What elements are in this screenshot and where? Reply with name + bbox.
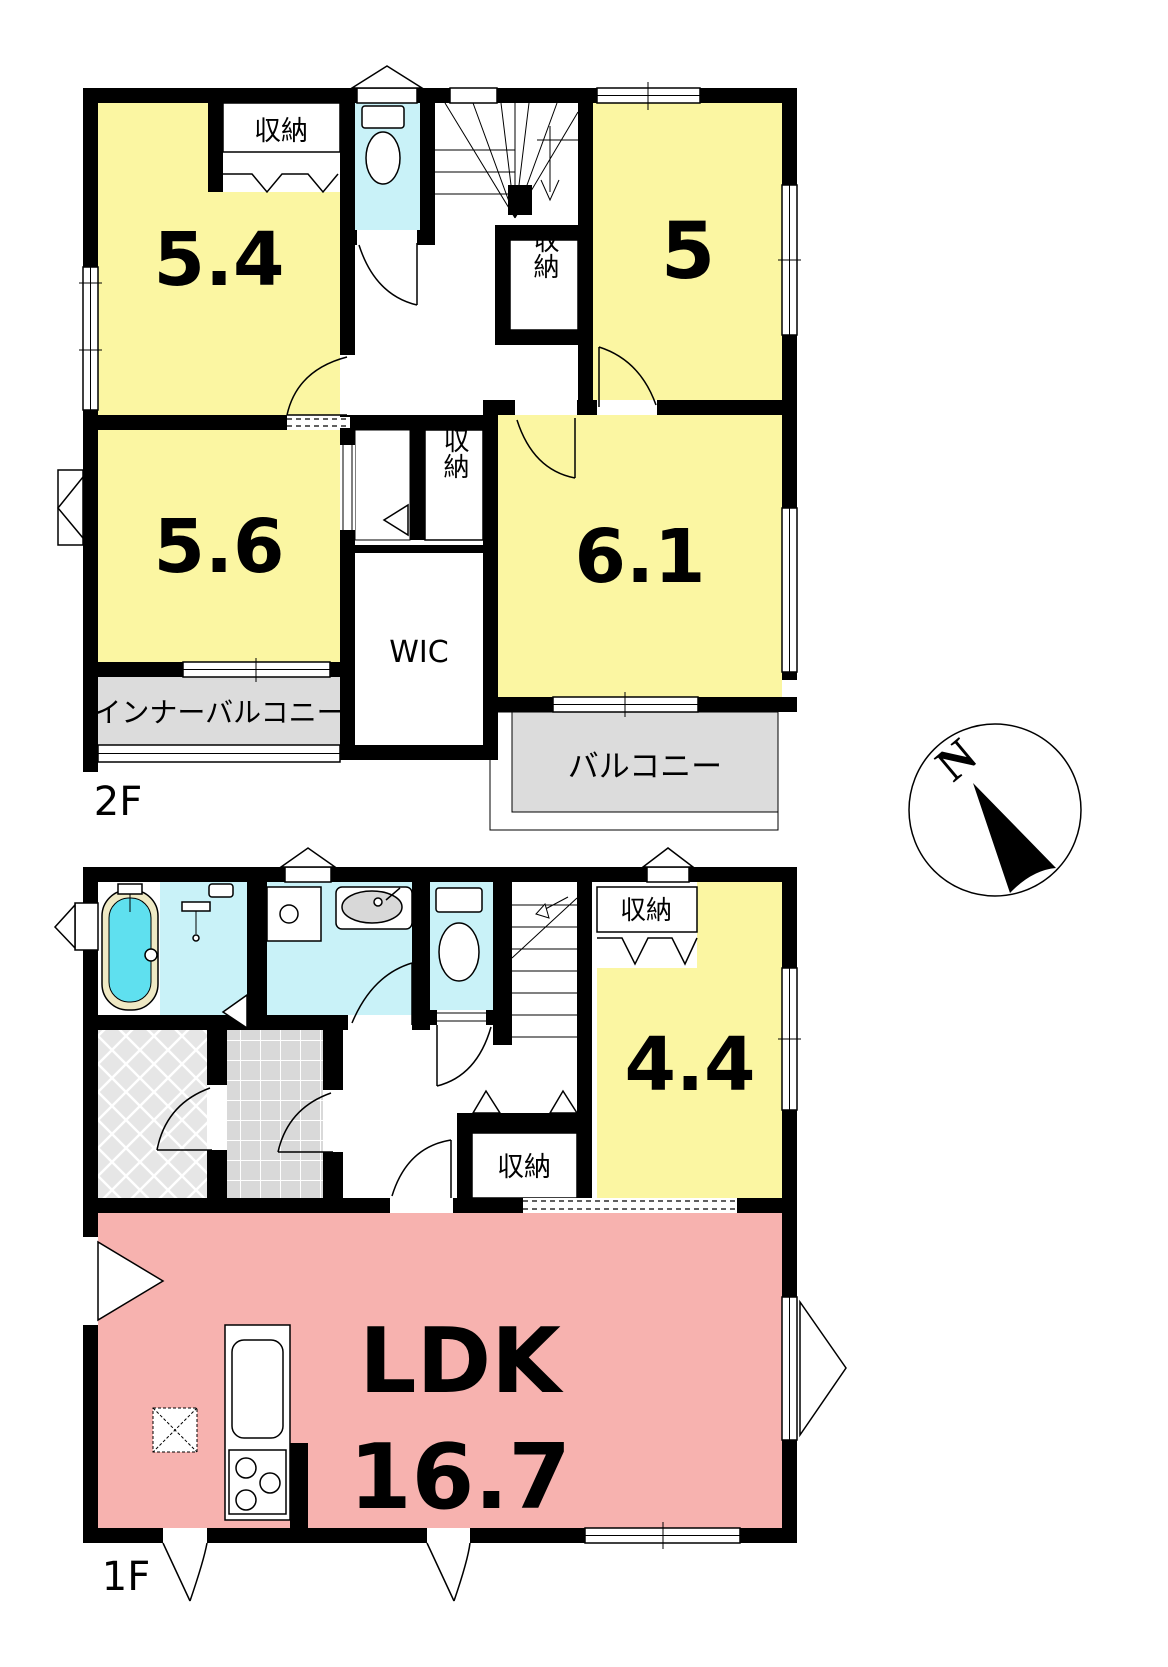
floor-plan-page: 5.4 5 5.6 6.1 収納 収納 収納 WIC インナーバルコニー バルコ… [0,0,1168,1662]
window-stairs-top [450,88,497,103]
gable-vent-toilet2f-icon [352,66,422,88]
ldk-label: LDK [359,1309,564,1414]
room-5-6-label: 5.6 [153,504,284,590]
bay-window-bath-icon [55,905,75,948]
bay-window-bath [75,903,98,950]
door-ldk-out1 [163,1543,207,1601]
room-5-label: 5 [661,207,715,297]
window-room44-top [647,867,689,882]
wic-label: WIC [389,635,448,670]
floor-1f-plan: 4.4 収納 収納 LDK 16.7 1F [55,848,846,1601]
refrigerator-space-icon [153,1408,197,1452]
bathtub-icon [102,884,158,1010]
room-5-4-label: 5.4 [153,217,284,303]
floor-1f-label: 1F [102,1554,150,1600]
window-washroom-top [285,867,331,882]
washing-machine-icon [267,887,321,941]
slider-toilet1f [437,1010,486,1025]
floor-2f-label: 2F [94,779,142,825]
floor-plan-drawing: 5.4 5 5.6 6.1 収納 収納 収納 WIC インナーバルコニー バルコ… [0,0,1168,1662]
compass: N [909,724,1081,896]
closet-hall-label: 収納 [497,1152,551,1183]
balcony-label: バルコニー [568,749,722,785]
entrance-porch [98,1030,207,1198]
ldk-area-label: 16.7 [349,1425,571,1530]
inner-balcony-label: インナーバルコニー [93,696,344,729]
toilet-1f-icon [436,888,482,981]
room-6-1-label: 6.1 [574,514,705,600]
closet-mid-label: 収納 [439,427,469,479]
closet-4-4-label: 収納 [620,896,672,926]
genkan [227,1030,323,1198]
toilet-2f-icon [362,106,404,184]
vanity-sink-icon [336,887,412,929]
gable-vent-washroom-icon [281,848,335,867]
floor-2f-plan: 5.4 5 5.6 6.1 収納 収納 収納 WIC インナーバルコニー バルコ… [58,66,801,830]
door-ldk-out2 [427,1543,470,1601]
bath-counter-icon [209,884,233,897]
gable-vent-room44-icon [643,848,693,867]
kitchen-counter-icon [225,1325,290,1520]
ldk-right-opening-icon [800,1302,846,1435]
window-toilet2f-top [357,88,417,103]
closet-stairs-label: 収納 [529,227,559,279]
window-ldk-left [83,1237,98,1325]
closet-5-4-label: 収納 [254,116,308,147]
stove-icon [229,1450,286,1514]
room-4-4-label: 4.4 [624,1022,755,1108]
slider-ldk-44 [523,1198,737,1213]
closet56-opening [340,445,355,530]
